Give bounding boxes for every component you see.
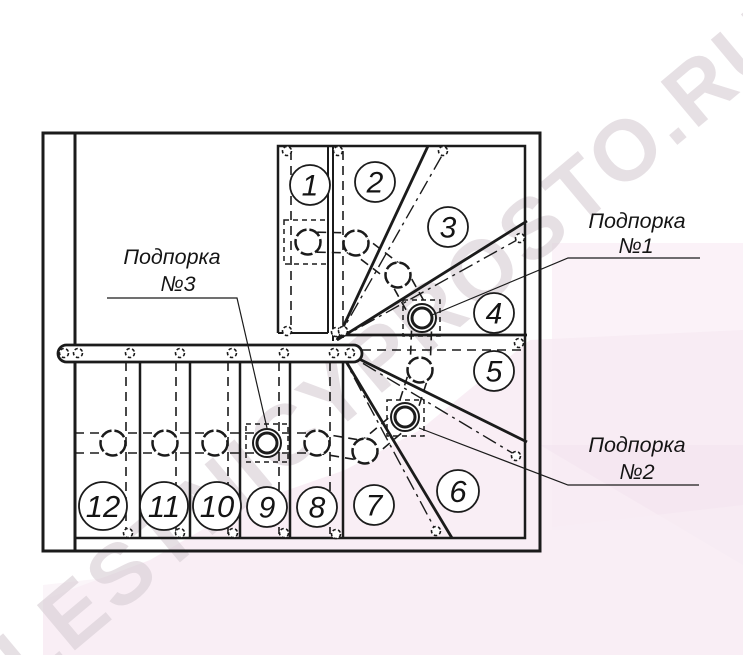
baluster-circle xyxy=(353,439,378,464)
step-label-9: 9 xyxy=(259,492,276,525)
support-2-label-line1: Подпорка xyxy=(588,433,685,457)
step-number-10: 10 xyxy=(193,482,241,530)
step-number-11: 11 xyxy=(140,482,188,530)
step-number-2: 2 xyxy=(355,162,395,202)
fastener-icon xyxy=(74,349,83,358)
step-label-2: 2 xyxy=(366,167,384,200)
fastener-icon xyxy=(228,349,237,358)
fastener-icon xyxy=(515,339,524,348)
fastener-icon xyxy=(516,234,525,243)
step-label-5: 5 xyxy=(486,356,503,389)
support-3-label-line2: №3 xyxy=(160,272,195,296)
step-number-8: 8 xyxy=(297,487,337,527)
baluster-circle xyxy=(296,230,321,255)
step-number-5: 5 xyxy=(474,351,514,391)
baluster-circle xyxy=(344,231,369,256)
fastener-icon xyxy=(334,147,343,156)
fastener-icon xyxy=(280,529,289,538)
step-label-3: 3 xyxy=(440,212,457,245)
step-label-1: 1 xyxy=(302,170,319,203)
plan-canvas: LESTNICYPROSTO.RU xyxy=(0,0,743,655)
baluster-circle xyxy=(408,358,433,383)
support-1-label-line1: Подпорка xyxy=(588,209,685,233)
fastener-icon xyxy=(126,349,135,358)
fastener-icon xyxy=(346,349,355,358)
step-label-12: 12 xyxy=(86,489,120,524)
fastener-icon xyxy=(439,147,448,156)
step-number-6: 6 xyxy=(437,470,479,512)
fastener-icon xyxy=(339,327,348,336)
support-2-label-line2: №2 xyxy=(619,460,654,484)
step-label-6: 6 xyxy=(449,474,467,509)
step-label-8: 8 xyxy=(309,492,326,525)
fastener-icon xyxy=(280,349,289,358)
fastener-icon xyxy=(283,327,292,336)
fastener-icon xyxy=(512,452,521,461)
handrail-bar xyxy=(58,345,362,362)
fastener-icon xyxy=(60,349,69,358)
step-number-4: 4 xyxy=(474,293,514,333)
step-label-10: 10 xyxy=(200,489,234,524)
fastener-icon xyxy=(229,529,238,538)
step-label-7: 7 xyxy=(366,490,384,523)
step-number-3: 3 xyxy=(428,207,468,247)
fastener-icon xyxy=(176,349,185,358)
support-3-label-line1: Подпорка xyxy=(123,245,220,269)
baluster-circle xyxy=(203,431,228,456)
step-label-4: 4 xyxy=(486,298,503,331)
baluster-circle xyxy=(153,431,178,456)
support-1-label-line2: №1 xyxy=(618,234,653,258)
step-number-7: 7 xyxy=(354,485,394,525)
fastener-icon xyxy=(332,530,341,539)
baluster-circle xyxy=(305,431,330,456)
fastener-icon xyxy=(176,529,185,538)
step-number-12: 12 xyxy=(79,482,127,530)
fastener-icon xyxy=(330,349,339,358)
fastener-icon xyxy=(283,147,292,156)
baluster-circle xyxy=(386,263,411,288)
baluster-circle xyxy=(101,431,126,456)
fastener-icon xyxy=(124,529,133,538)
step-number-9: 9 xyxy=(247,487,287,527)
staircase-plan-drawing: LESTNICYPROSTO.RU xyxy=(0,0,743,655)
fastener-icon xyxy=(432,527,441,536)
step-label-11: 11 xyxy=(148,489,180,524)
step-number-1: 1 xyxy=(290,165,330,205)
